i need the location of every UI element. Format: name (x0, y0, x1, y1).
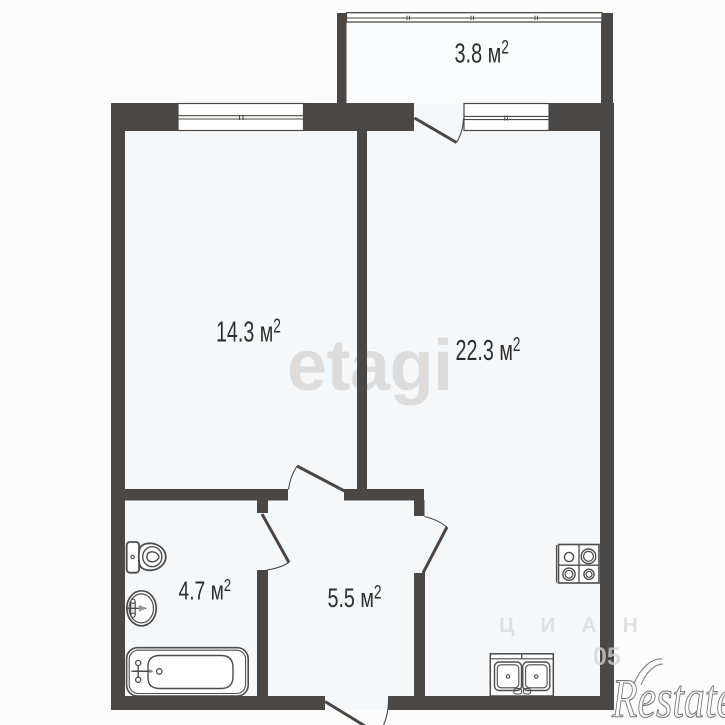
svg-text:4.7 м2: 4.7 м2 (179, 576, 232, 606)
svg-text:5.5 м2: 5.5 м2 (328, 581, 382, 613)
svg-text:3.8 м2: 3.8 м2 (455, 36, 510, 69)
svg-text:14.3 м2: 14.3 м2 (216, 314, 281, 349)
svg-text:22.3 м2: 22.3 м2 (456, 333, 521, 367)
svg-text:etagi: etagi (287, 326, 453, 406)
svg-text:ЦИАН: ЦИАН (499, 614, 664, 637)
svg-text:Restate: Restate (611, 667, 725, 725)
